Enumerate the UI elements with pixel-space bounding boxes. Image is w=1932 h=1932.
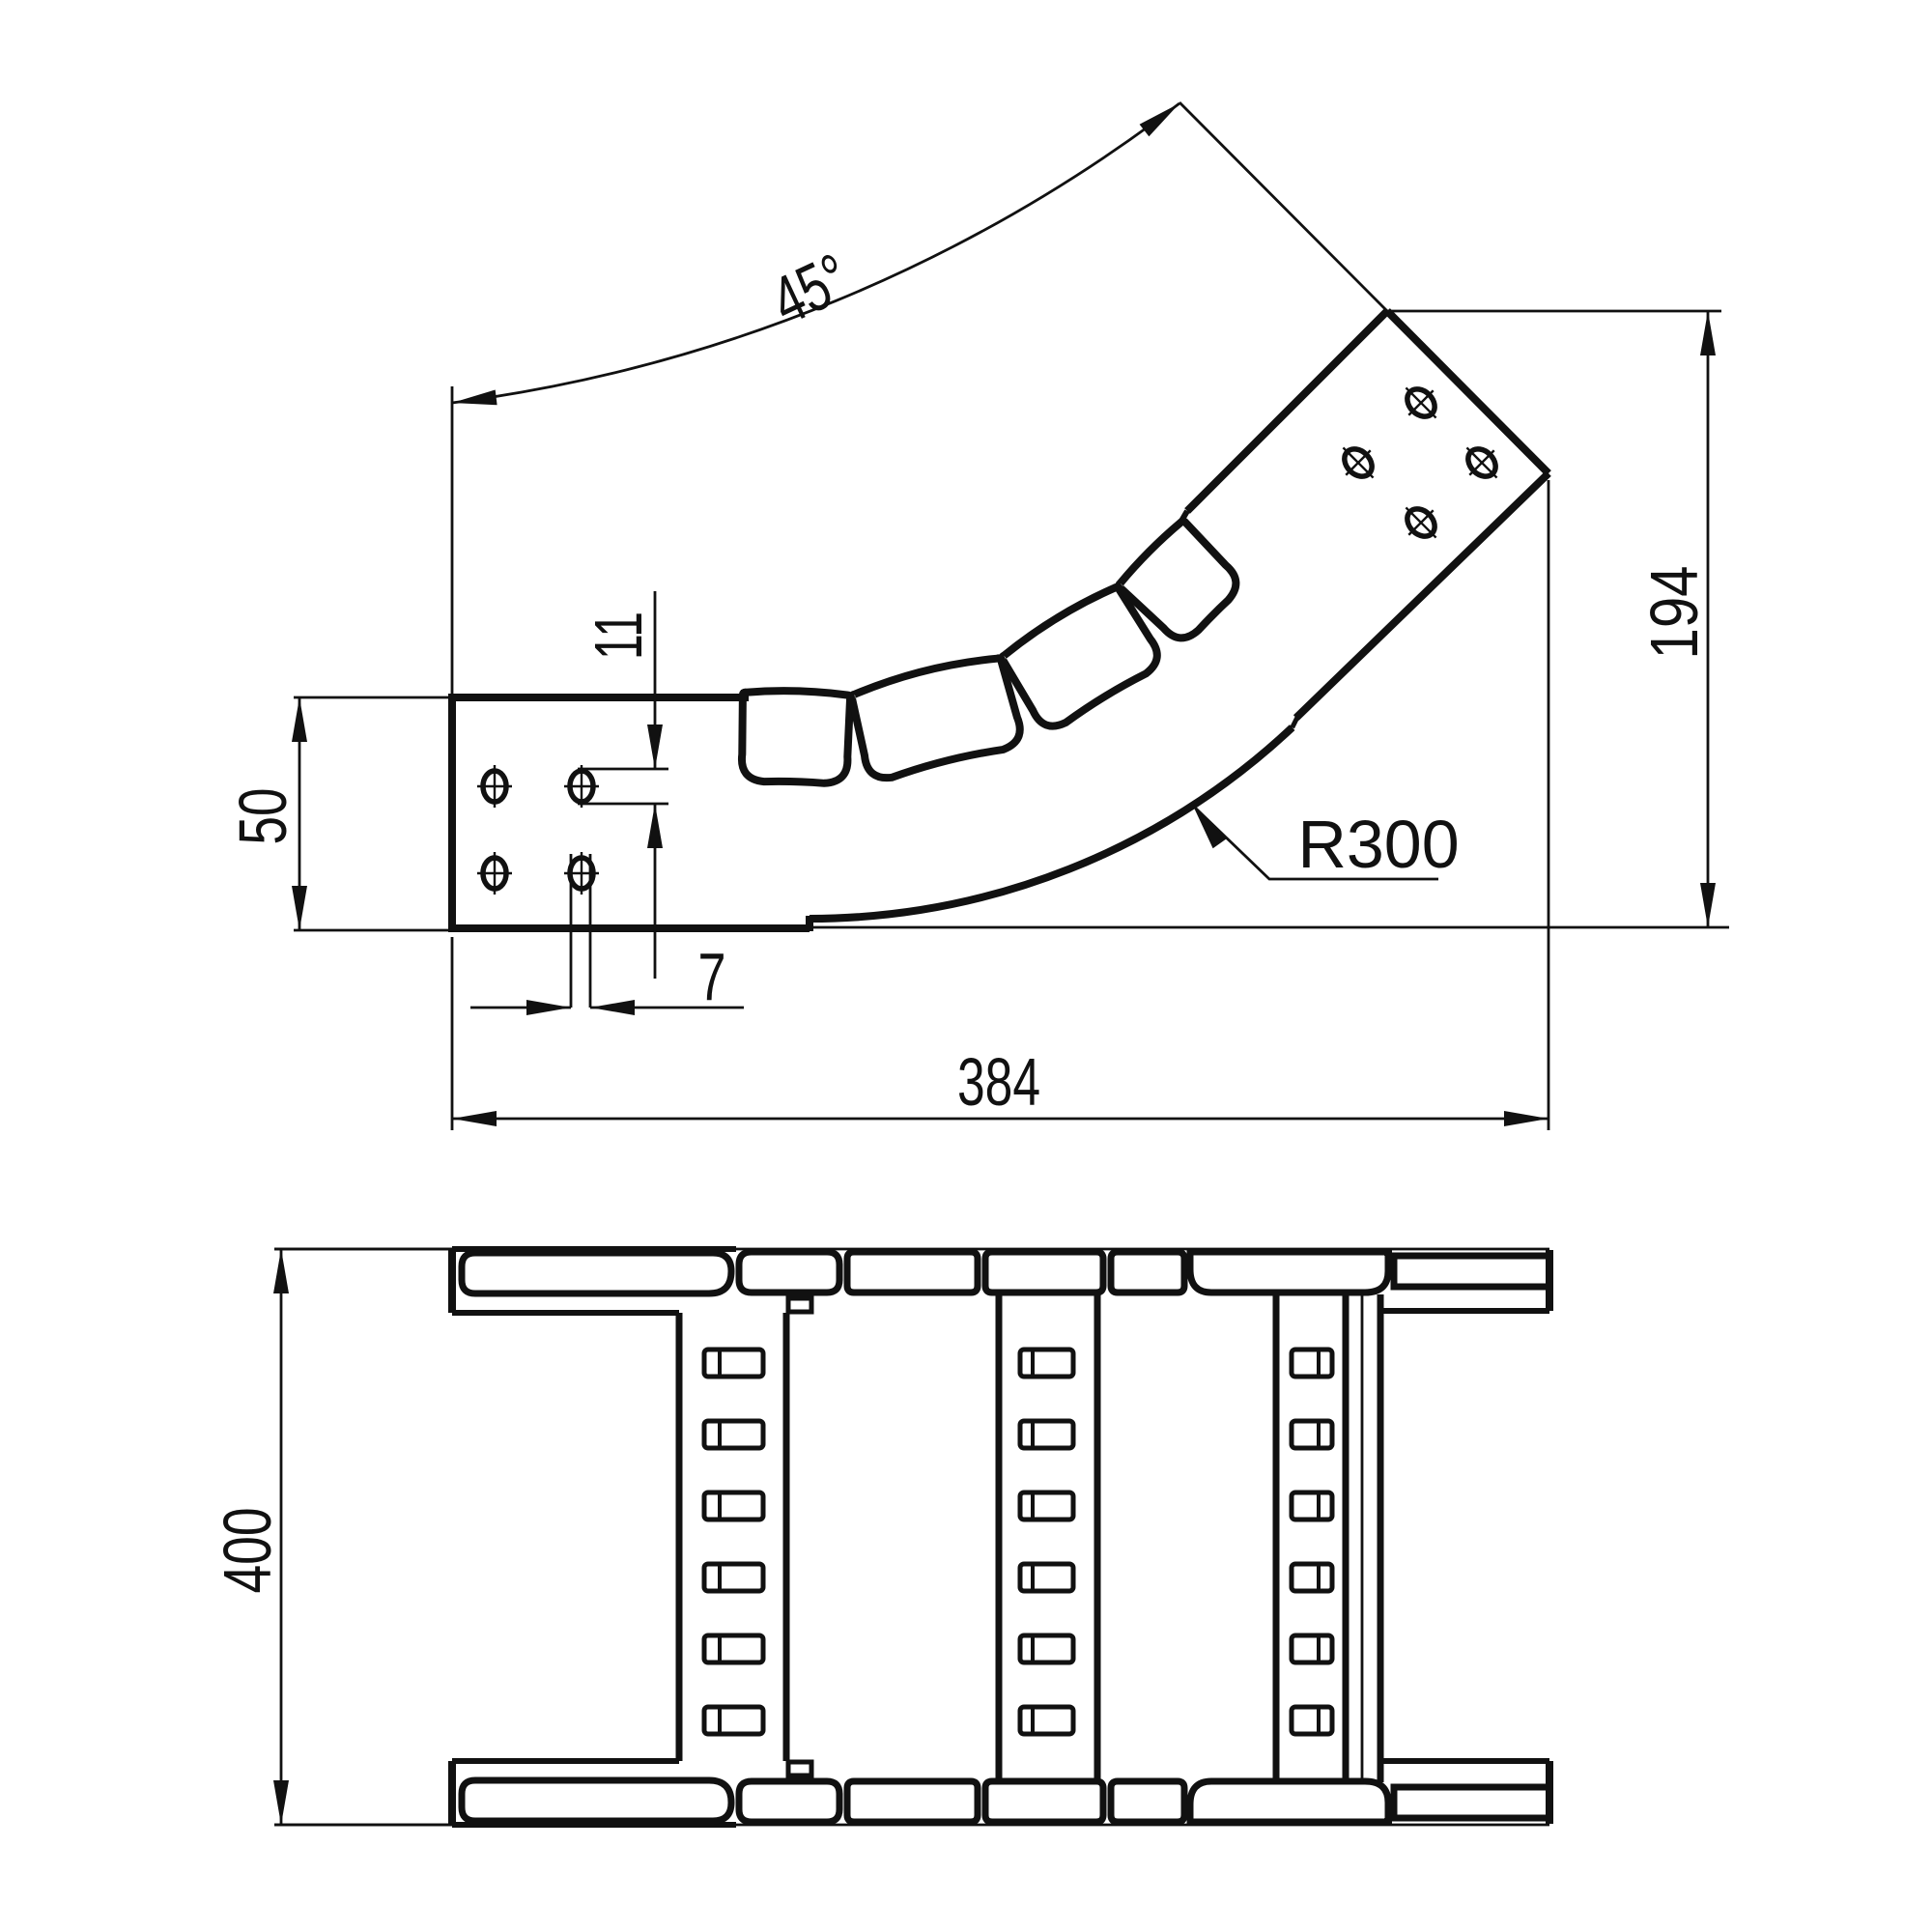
svg-text:R300: R300 <box>1297 807 1459 882</box>
svg-text:384: 384 <box>957 1044 1040 1120</box>
svg-text:50: 50 <box>225 788 300 845</box>
svg-text:7: 7 <box>698 939 726 1014</box>
svg-text:11: 11 <box>581 611 656 660</box>
svg-text:194: 194 <box>1636 566 1712 660</box>
svg-text:400: 400 <box>210 1508 285 1594</box>
